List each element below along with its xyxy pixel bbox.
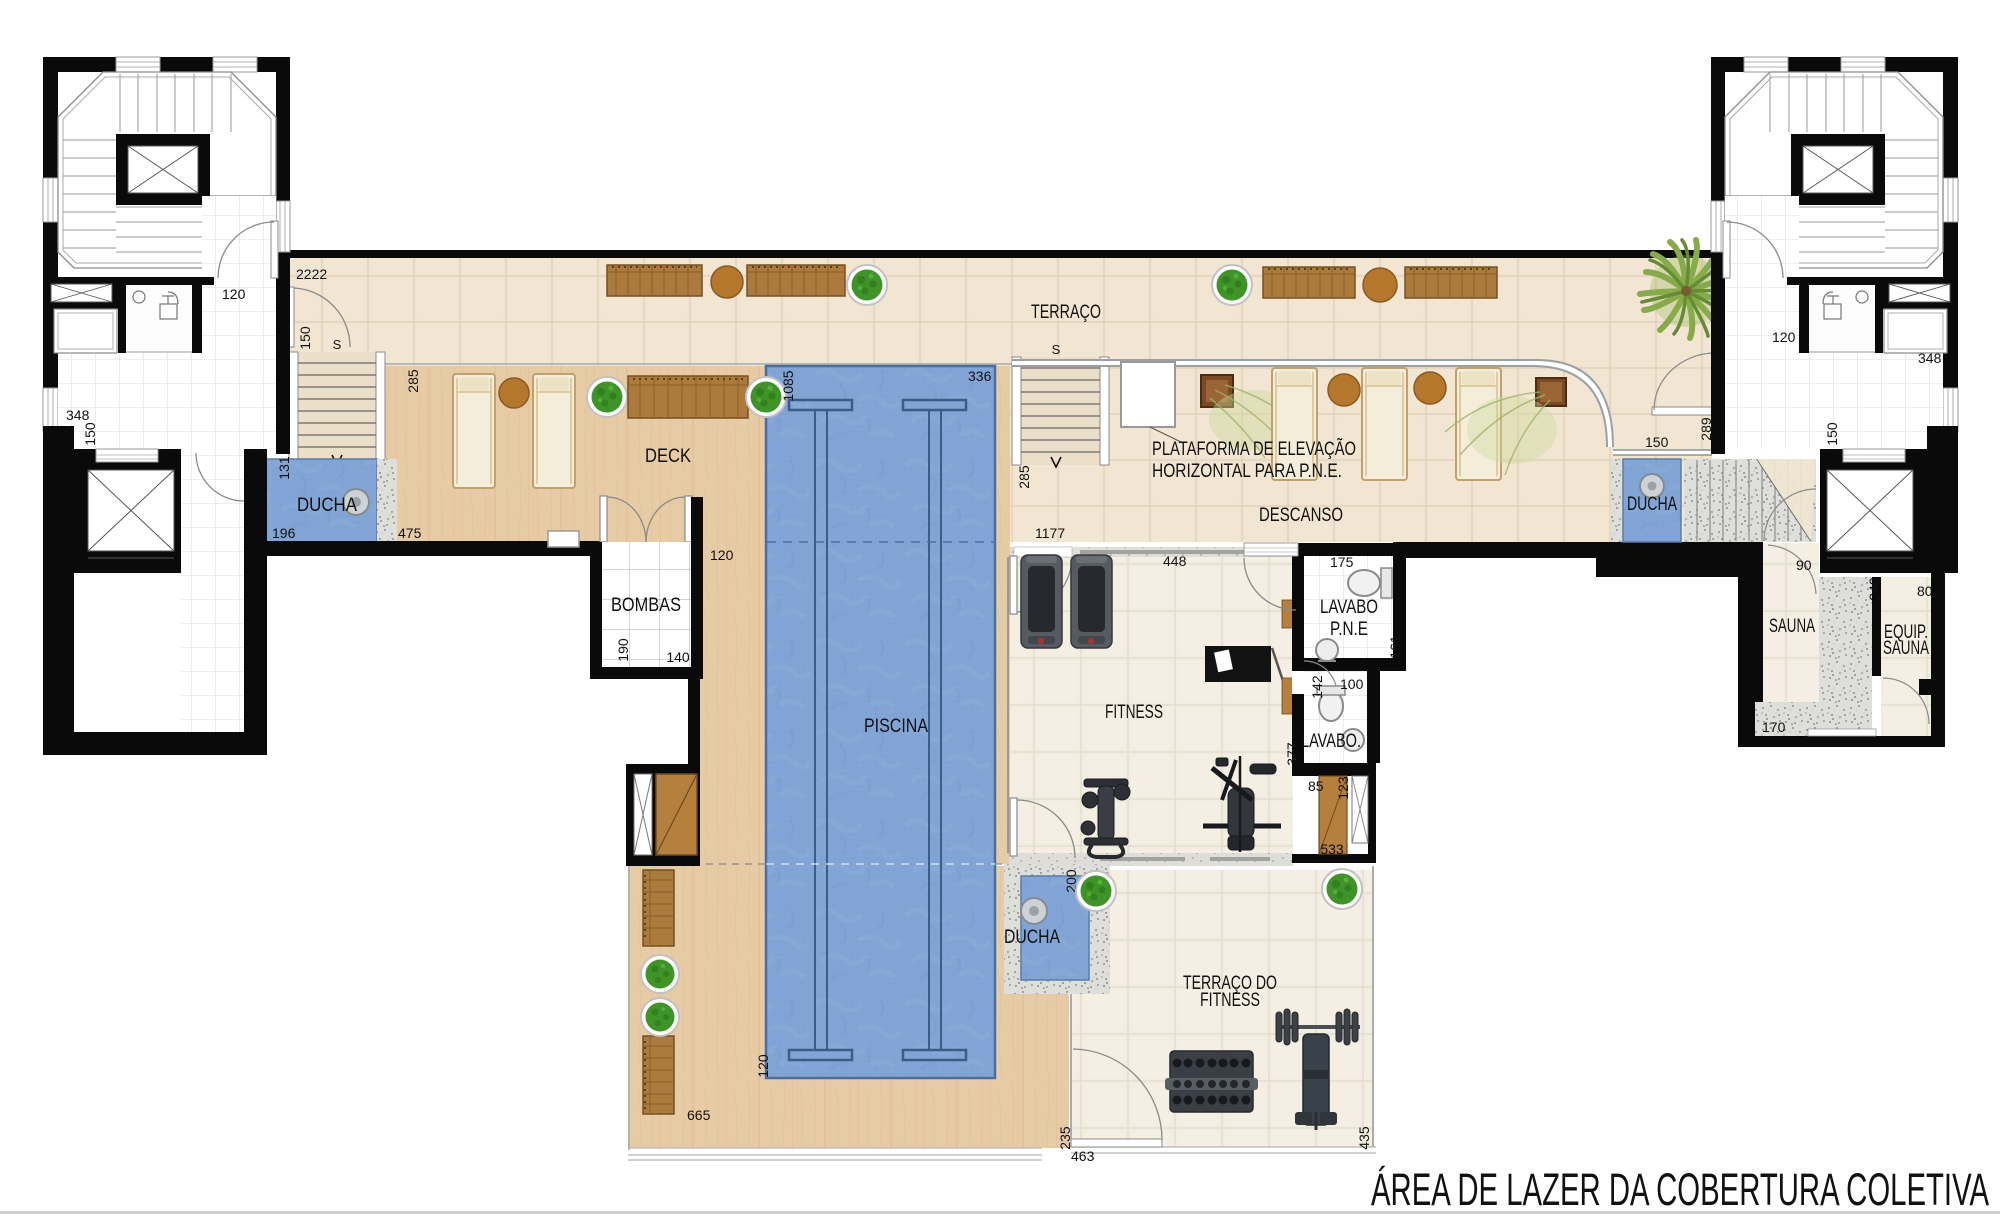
svg-text:150: 150 [1645,434,1669,450]
svg-text:196: 196 [272,525,296,541]
svg-text:285: 285 [1016,465,1032,489]
svg-text:DUCHA: DUCHA [297,495,357,516]
svg-text:80: 80 [1917,583,1933,599]
svg-text:463: 463 [1071,1148,1095,1164]
svg-text:DUCHA: DUCHA [1627,494,1677,515]
svg-text:123: 123 [1335,776,1351,800]
svg-text:161: 161 [1387,635,1403,659]
svg-text:448: 448 [1163,553,1187,569]
svg-text:HORIZONTAL PARA P.N.E.: HORIZONTAL PARA P.N.E. [1152,461,1342,482]
svg-text:85: 85 [1308,778,1324,794]
svg-text:240: 240 [1866,577,1882,601]
svg-text:PLATAFORMA DE ELEVAÇÃO: PLATAFORMA DE ELEVAÇÃO [1152,438,1356,460]
svg-text:190: 190 [615,638,631,662]
svg-text:1177: 1177 [1035,525,1065,541]
svg-text:LAVABO: LAVABO [1320,597,1378,618]
svg-text:285: 285 [405,369,421,393]
svg-text:100: 100 [1340,676,1364,692]
svg-text:1085: 1085 [780,370,796,401]
svg-text:142: 142 [1309,675,1325,699]
svg-text:TERRAÇO: TERRAÇO [1031,302,1101,323]
svg-text:336: 336 [968,368,992,384]
svg-text:377: 377 [1284,742,1300,766]
svg-text:90: 90 [1796,557,1812,573]
svg-text:150: 150 [297,326,313,350]
svg-text:FITNESS: FITNESS [1200,990,1260,1011]
svg-text:DECK: DECK [645,446,691,467]
svg-text:120: 120 [222,286,246,302]
svg-text:475: 475 [398,525,422,541]
svg-text:348: 348 [66,407,90,423]
svg-text:2222: 2222 [296,266,327,282]
svg-text:120: 120 [755,1054,771,1078]
svg-text:PISCINA: PISCINA [864,716,928,737]
svg-text:SAUNA: SAUNA [1769,616,1815,637]
svg-text:170: 170 [1762,719,1786,735]
svg-text:120: 120 [1772,329,1796,345]
svg-text:150: 150 [82,422,98,446]
svg-text:DUCHA: DUCHA [1004,927,1060,948]
svg-text:BOMBAS: BOMBAS [611,595,681,616]
svg-text:P.N.E: P.N.E [1330,619,1368,640]
svg-text:140: 140 [666,649,690,665]
svg-text:131: 131 [276,456,292,480]
svg-text:150: 150 [1824,422,1840,446]
svg-text:235: 235 [1057,1126,1073,1150]
svg-text:665: 665 [687,1107,711,1123]
svg-text:533: 533 [1320,841,1344,857]
svg-text:ÁREA DE LAZER DA COBERTURA COL: ÁREA DE LAZER DA COBERTURA COLETIVA [1371,1164,1989,1215]
svg-text:LAVABO.: LAVABO. [1301,731,1361,752]
svg-text:FITNESS: FITNESS [1105,702,1163,723]
svg-text:DESCANSO: DESCANSO [1259,505,1343,526]
svg-text:S: S [333,337,342,352]
svg-text:SAUNA: SAUNA [1883,638,1929,659]
svg-text:175: 175 [1330,554,1354,570]
svg-text:120: 120 [710,547,734,563]
svg-text:435: 435 [1356,1126,1372,1150]
svg-text:S: S [1052,342,1061,357]
svg-text:348: 348 [1918,350,1942,366]
